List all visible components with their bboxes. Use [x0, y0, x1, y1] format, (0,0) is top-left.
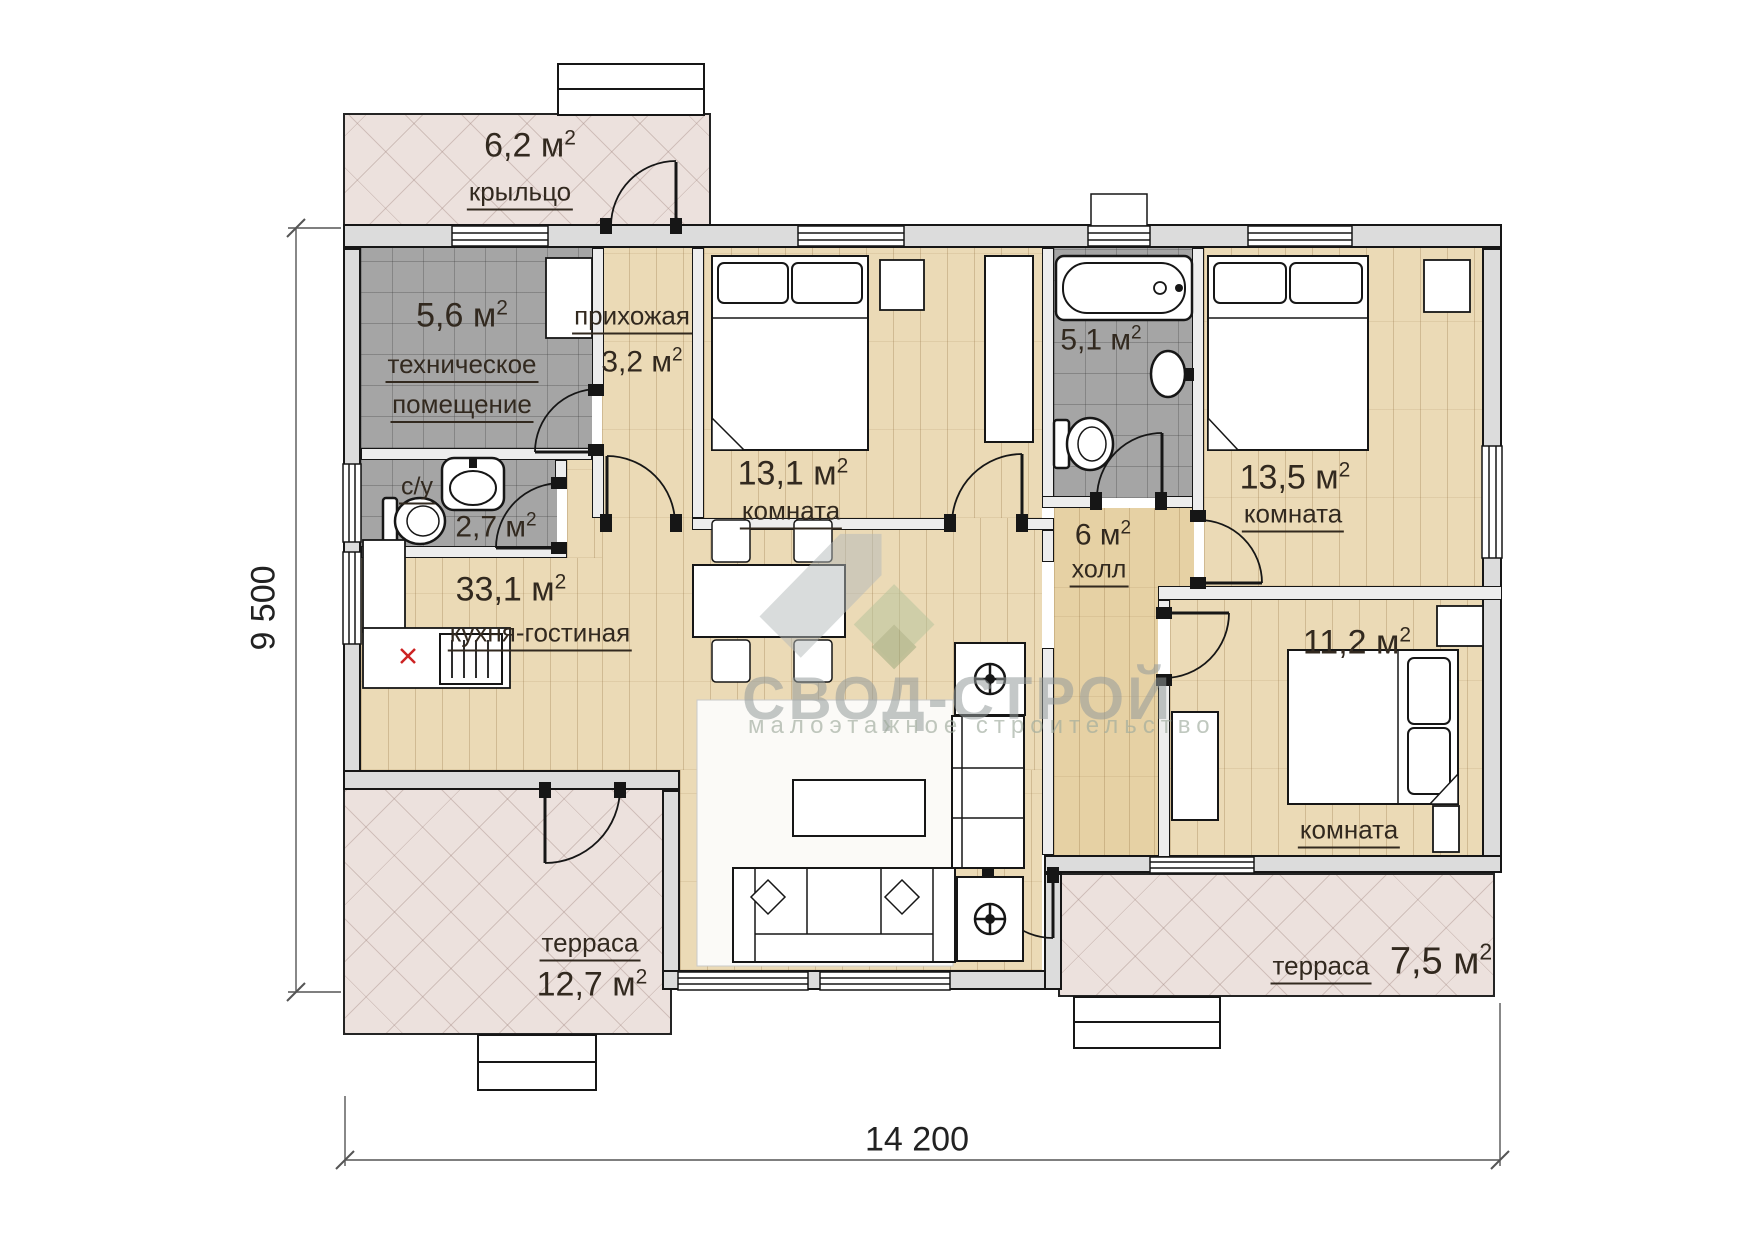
kitchen-area-label: 33,1 м2 [456, 570, 567, 609]
bedroom1-area-label: 13,1 м2 [738, 454, 849, 493]
bedroom1-name-label: комната [740, 496, 842, 527]
wc-name-label: с/у [399, 473, 435, 502]
nightstand [880, 260, 924, 310]
bed [712, 256, 868, 450]
coffee-table [793, 780, 925, 836]
wardrobe [1172, 712, 1218, 820]
bedroom3-area-label: 11,2 м2 [1303, 623, 1411, 662]
bed [1288, 650, 1458, 804]
window [343, 464, 361, 542]
kitchen-name-label: кухня-гостиная [448, 618, 632, 649]
sink [1151, 351, 1194, 397]
terrace-left-area-label: 12,7 м2 [537, 965, 648, 1004]
dining-table [693, 520, 845, 682]
hallway-name-label: прихожая [572, 301, 692, 332]
sofa [733, 868, 955, 962]
bed [1208, 256, 1368, 450]
tech-name-label: техническоепомещение [386, 344, 539, 424]
bath-area-label: 5,1 м2 [1060, 323, 1141, 358]
kitchen-counter [363, 540, 510, 688]
porch-area-label: 6,2 м2 [484, 126, 576, 165]
window [798, 226, 904, 246]
steps-left [478, 1035, 596, 1090]
hall-name-label: холл [1070, 556, 1129, 585]
window [343, 552, 361, 644]
tv-cabinet [952, 716, 1024, 868]
nightstand [1424, 260, 1470, 312]
window [820, 972, 950, 990]
window [1088, 194, 1150, 246]
toilet [383, 498, 445, 544]
plant-icon [975, 904, 1005, 934]
wardrobe [985, 256, 1033, 442]
bathtub [1056, 256, 1192, 320]
terrace-right-name-label: терраса [1271, 951, 1372, 982]
terrace-right-area-label: 7,5 м2 [1390, 939, 1492, 984]
porch-name-label: крыльцо [467, 177, 573, 208]
bedroom2-area-label: 13,5 м2 [1240, 458, 1351, 497]
window [452, 226, 548, 246]
hall-area-label: 6 м2 [1075, 518, 1131, 553]
floor-plan: СВОД-СТРОЙ малоэтажное строительство 6,2… [0, 0, 1754, 1241]
toilet [1054, 418, 1113, 470]
sink [442, 458, 504, 510]
width-dimension-label: 14 200 [865, 1121, 969, 1160]
window [1248, 226, 1352, 246]
window [1482, 446, 1502, 558]
window [678, 972, 808, 990]
bedroom3-name-label: комната [1298, 815, 1400, 846]
window [1150, 857, 1254, 873]
terrace-left-name-label: терраса [540, 928, 641, 959]
bedroom2-name-label: комната [1242, 499, 1344, 530]
height-dimension-label: 9 500 [245, 565, 284, 650]
plant-icon [975, 664, 1005, 694]
steps-right [1074, 997, 1220, 1048]
tech-area-label: 5,6 м2 [416, 296, 508, 335]
hallway-area-label: 3,2 м2 [601, 345, 682, 380]
roof-vent [558, 64, 704, 115]
wc-area-label: 2,7 м2 [455, 510, 536, 545]
